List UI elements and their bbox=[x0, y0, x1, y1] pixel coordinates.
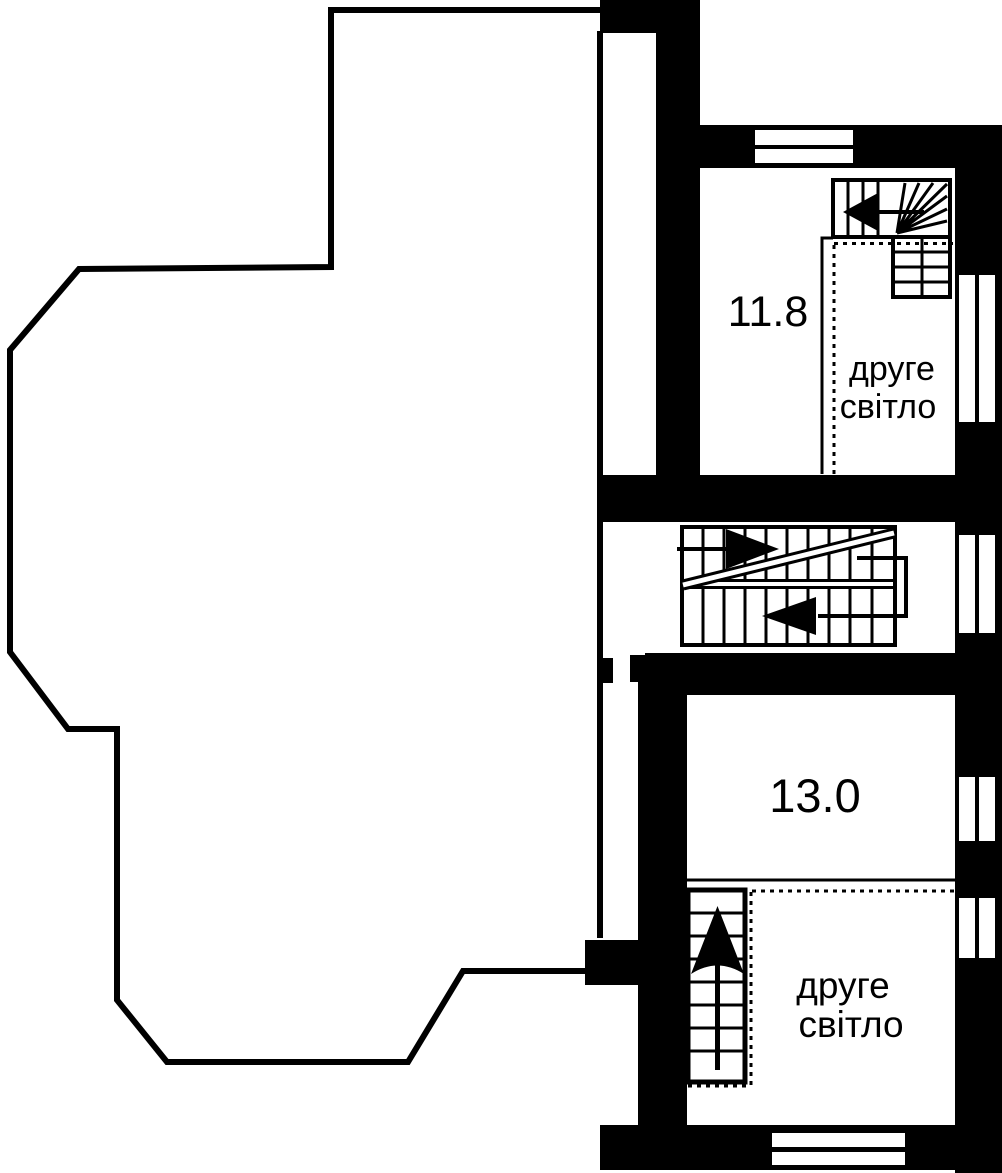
wall-hall-top bbox=[600, 475, 1002, 522]
wall-upper-band bbox=[656, 30, 700, 476]
floor-plan-drawing: 11.8 друге світло 13.0 друге світло bbox=[0, 0, 1002, 1173]
staircase-middle bbox=[677, 527, 906, 645]
door-jamb-right bbox=[630, 655, 646, 682]
wall-hall-bottom bbox=[645, 653, 1002, 695]
window-pane bbox=[979, 777, 995, 841]
lower-floor-outline bbox=[10, 10, 600, 1062]
window-pane bbox=[772, 1133, 905, 1147]
staircase-winder bbox=[833, 180, 950, 297]
void-label-upper-line1: друге bbox=[849, 350, 935, 388]
void-label-upper-line2: світло bbox=[840, 388, 937, 426]
window-pane bbox=[959, 898, 975, 958]
window-pane bbox=[979, 275, 995, 422]
outline-path bbox=[10, 10, 600, 1062]
window-pane bbox=[755, 149, 853, 163]
floor-plan: 11.8 друге світло 13.0 друге світло bbox=[0, 0, 1002, 1173]
staircase-lower bbox=[688, 890, 745, 1082]
wall-outline-block bbox=[585, 940, 640, 985]
window-pane bbox=[755, 130, 853, 145]
window-pane bbox=[959, 275, 975, 422]
window-pane bbox=[959, 535, 975, 633]
void-label-lower-line1: друге bbox=[796, 965, 890, 1006]
window-pane bbox=[979, 898, 995, 958]
void-label-lower-line2: світло bbox=[798, 1004, 903, 1045]
window-pane bbox=[772, 1152, 905, 1165]
wall-top-block bbox=[600, 0, 700, 33]
window-pane bbox=[979, 535, 995, 633]
window-pane bbox=[959, 777, 975, 841]
room-area-label-lower: 13.0 bbox=[769, 769, 860, 822]
void-upper-edge bbox=[822, 238, 833, 474]
door-jamb-left bbox=[597, 658, 613, 683]
room-area-label-upper: 11.8 bbox=[728, 288, 809, 336]
wall-lower-band bbox=[638, 680, 687, 1140]
